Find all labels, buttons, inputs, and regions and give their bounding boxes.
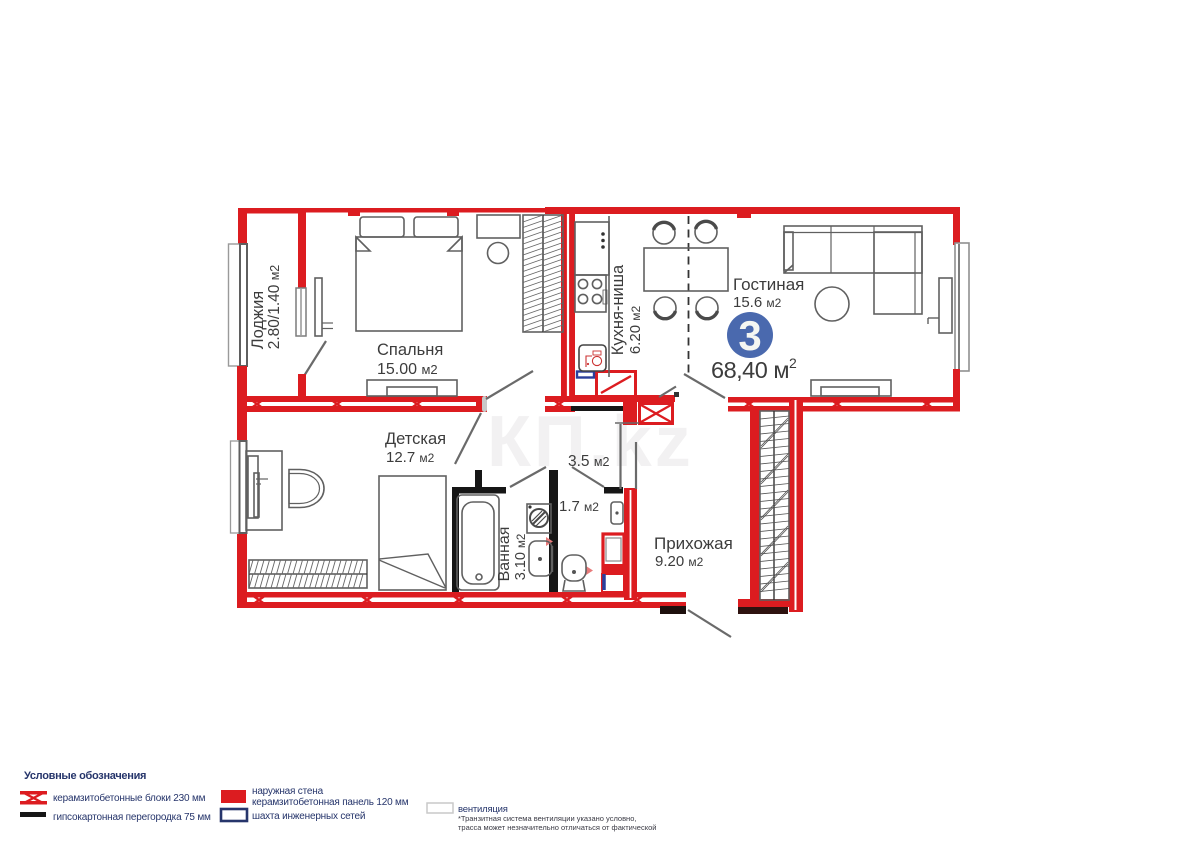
svg-text:Лоджия: Лоджия	[249, 291, 267, 349]
svg-text:3.10 м2: 3.10 м2	[513, 534, 529, 581]
svg-text:*Транзитная система вентиляции: *Транзитная система вентиляции указано у…	[458, 814, 636, 823]
svg-text:3.5 м2: 3.5 м2	[568, 453, 609, 470]
svg-text:15.6 м2: 15.6 м2	[733, 294, 782, 311]
svg-text:68,40 м2: 68,40 м2	[711, 355, 797, 383]
svg-text:2.80/1.40 м2: 2.80/1.40 м2	[266, 265, 283, 350]
svg-text:Условные обозначения: Условные обозначения	[24, 770, 146, 782]
svg-text:15.00 м2: 15.00 м2	[377, 361, 438, 378]
svg-text:наружная стена: наружная стена	[252, 786, 324, 797]
svg-text:6.20 м2: 6.20 м2	[627, 306, 644, 355]
svg-text:керамзитобетонная панель 120 м: керамзитобетонная панель 120 мм	[252, 796, 409, 808]
svg-text:Кухня-ниша: Кухня-ниша	[609, 264, 627, 355]
svg-text:Спальня: Спальня	[377, 341, 443, 359]
svg-text:керамзитобетонные блоки 230 мм: керамзитобетонные блоки 230 мм	[53, 792, 206, 804]
svg-text:шахта инженерных сетей: шахта инженерных сетей	[252, 811, 365, 822]
svg-text:Гостиная: Гостиная	[733, 275, 804, 294]
svg-text:9.20 м2: 9.20 м2	[655, 553, 704, 570]
svg-text:1.7 м2: 1.7 м2	[559, 498, 599, 515]
svg-text:Ванная: Ванная	[496, 527, 513, 582]
svg-text:12.7 м2: 12.7 м2	[386, 449, 435, 466]
svg-text:гипсокартонная перегородка 75: гипсокартонная перегородка 75 мм	[53, 812, 211, 823]
svg-text:Детская: Детская	[385, 430, 446, 448]
svg-text:трасса может незначительно отл: трасса может незначительно отличаться от…	[458, 823, 656, 832]
svg-text:Прихожая: Прихожая	[654, 534, 733, 553]
svg-text:3: 3	[738, 312, 761, 359]
